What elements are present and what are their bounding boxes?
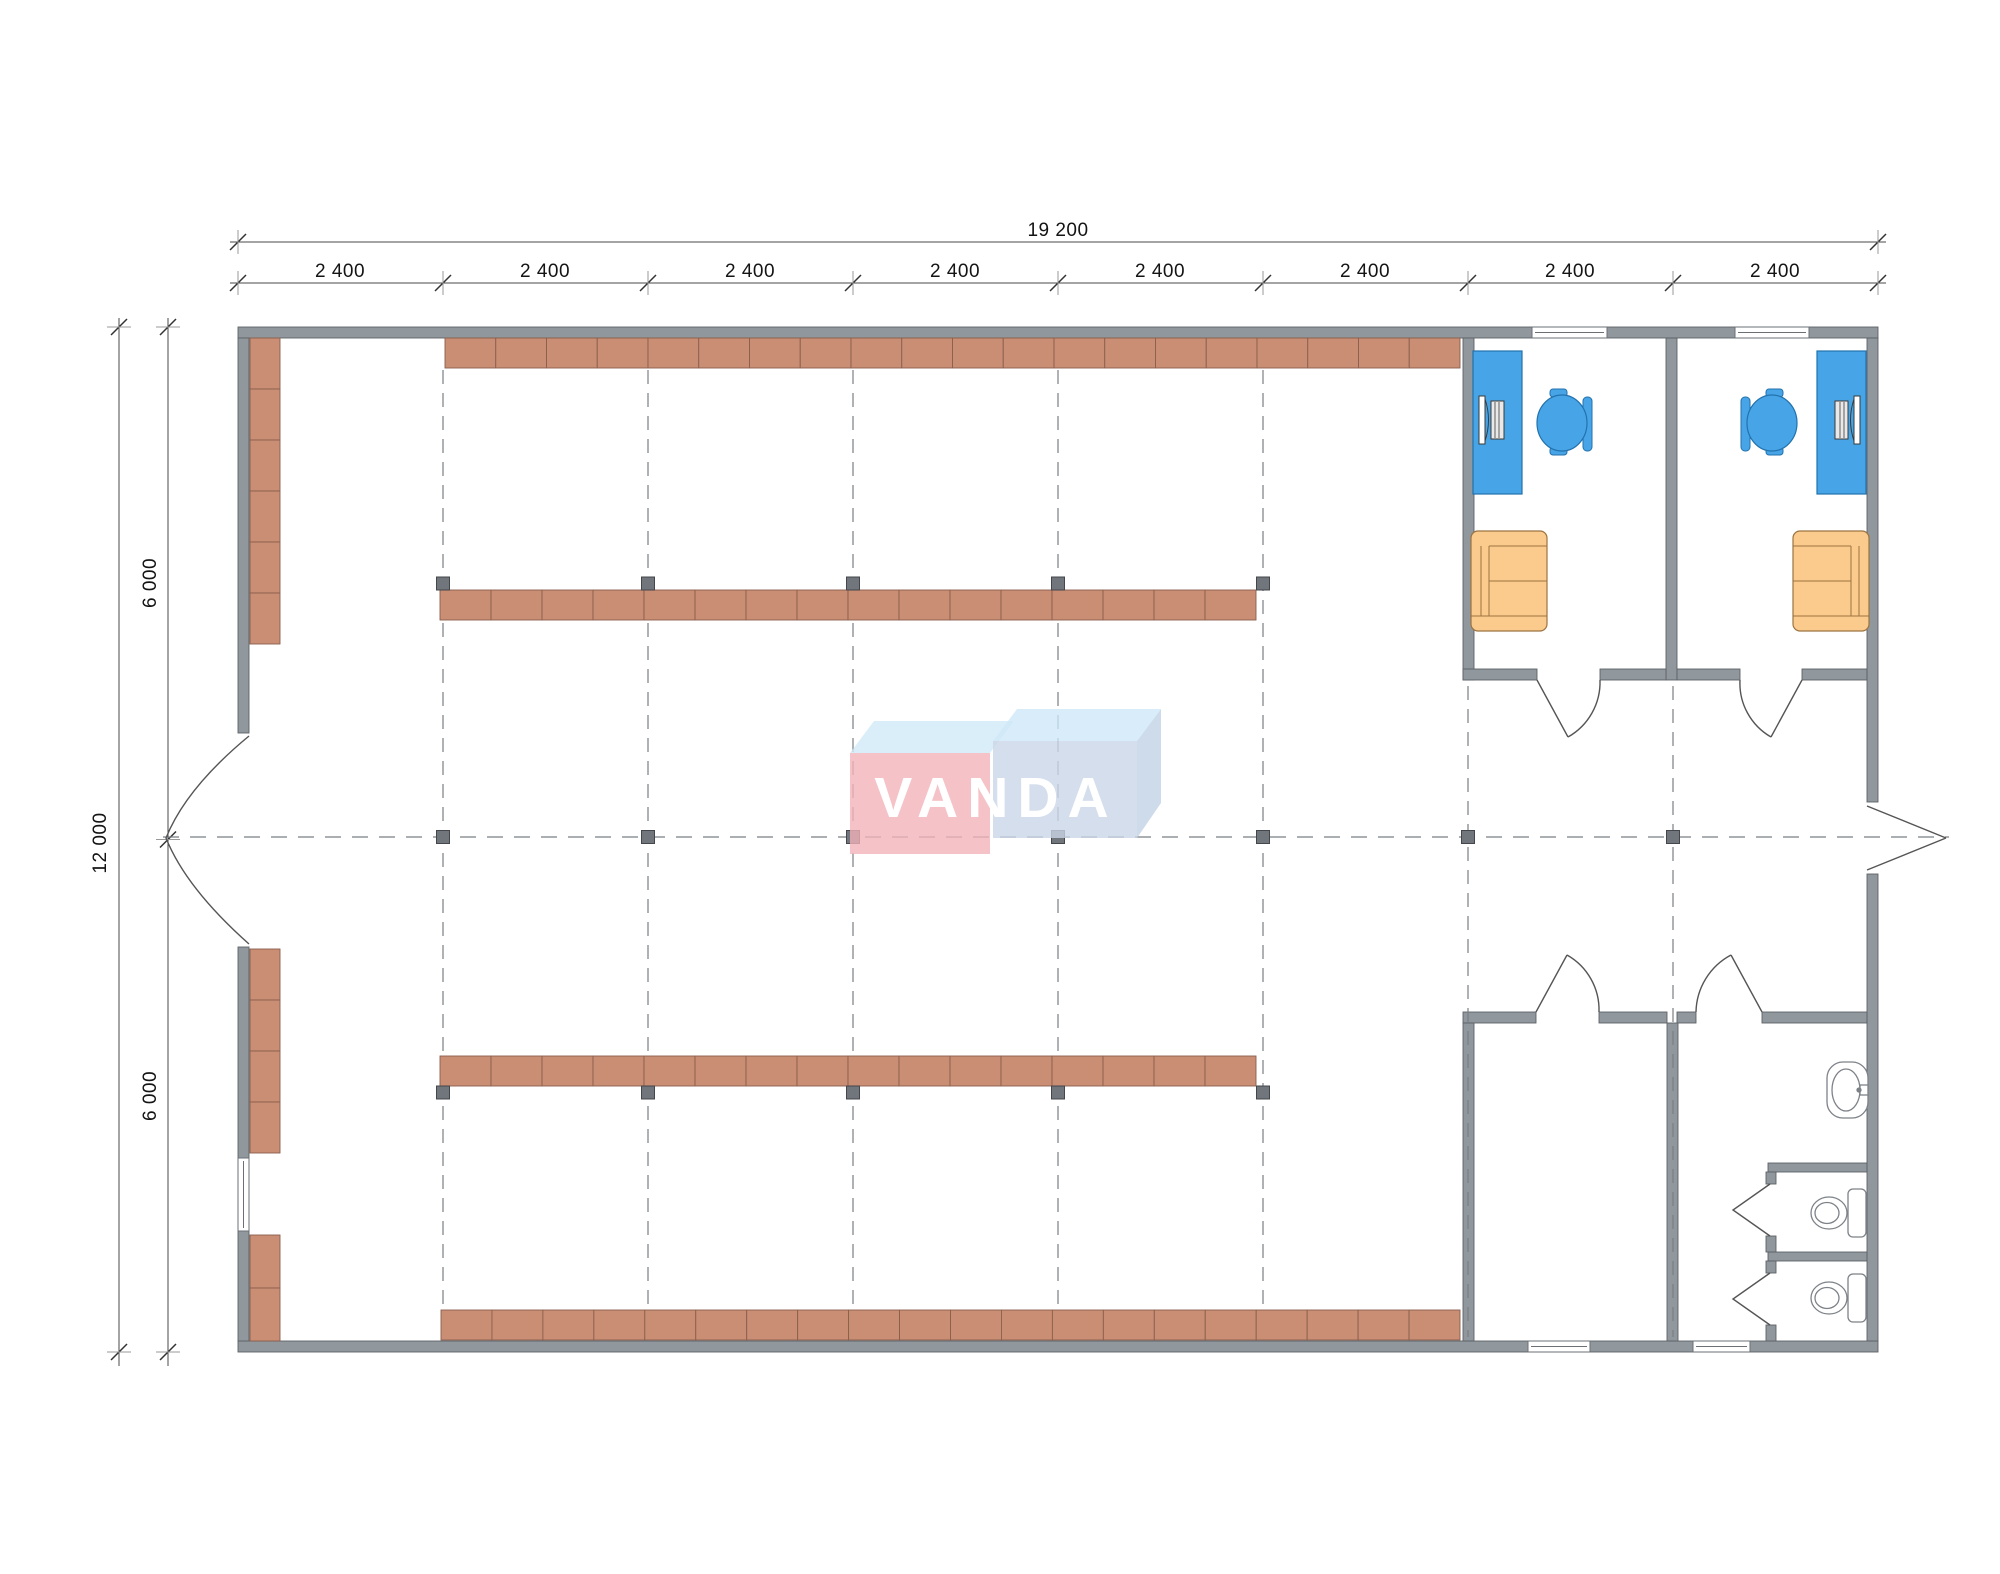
shelf-unit — [750, 338, 801, 368]
shelf-unit — [1001, 590, 1052, 620]
wall — [1766, 1172, 1776, 1184]
shelf-unit — [250, 1000, 280, 1051]
shelf-unit — [695, 1056, 746, 1086]
monitor-icon — [1479, 396, 1485, 444]
wall — [1463, 1012, 1536, 1023]
office-chair-icon — [1537, 395, 1587, 451]
shelf-unit — [1256, 1310, 1307, 1340]
logo-box-top — [993, 709, 1161, 741]
shelf-unit — [1205, 590, 1256, 620]
shelf-unit — [1105, 338, 1156, 368]
shelf-unit — [950, 590, 1001, 620]
wall — [1600, 669, 1666, 680]
column-marker — [1257, 1086, 1270, 1099]
shelf-unit — [746, 1056, 797, 1086]
shelf-unit — [899, 590, 950, 620]
shelf-unit — [1205, 1310, 1256, 1340]
shelf-unit — [1003, 338, 1054, 368]
office-1-furniture — [1471, 351, 1592, 631]
shelf-unit — [496, 338, 547, 368]
shelf-unit — [594, 1310, 645, 1340]
floor-plan-canvas: 19 200 2 400 2 400 2 400 2 400 2 400 2 4… — [0, 0, 2000, 1574]
shelf-unit — [797, 590, 848, 620]
shelf-unit — [1154, 1056, 1205, 1086]
dim-bay-8: 2 400 — [1750, 261, 1800, 282]
wall — [238, 1231, 249, 1341]
shelf-unit — [1103, 590, 1154, 620]
column-marker — [847, 1086, 860, 1099]
dim-total-height: 12 000 — [90, 812, 111, 873]
shelf-unit — [1103, 1056, 1154, 1086]
shelf-unit — [250, 440, 280, 491]
shelf-unit — [902, 338, 953, 368]
shelf-unit — [543, 1310, 594, 1340]
shelf-unit — [547, 338, 598, 368]
shelf-unit — [542, 590, 593, 620]
shelf-unit — [747, 1310, 798, 1340]
door-swing — [1537, 680, 1600, 737]
shelf-unit — [1001, 1310, 1052, 1340]
wall — [238, 327, 1878, 338]
shelf-unit — [445, 338, 496, 368]
column-marker — [642, 831, 655, 844]
shelf-unit — [250, 1235, 280, 1288]
shelf-unit — [848, 590, 899, 620]
wall — [1802, 669, 1867, 680]
wall — [1768, 1163, 1867, 1172]
shelf-unit — [250, 1051, 280, 1102]
sofa — [1471, 531, 1547, 631]
sofa — [1793, 531, 1869, 631]
wall — [1762, 1012, 1867, 1023]
shelf-unit — [250, 1102, 280, 1153]
dim-bay-3: 2 400 — [725, 261, 775, 282]
wall — [1867, 874, 1878, 1341]
shelf-unit — [644, 1056, 695, 1086]
office-chair-icon — [1747, 395, 1797, 451]
column-marker — [1257, 831, 1270, 844]
dim-bay-4: 2 400 — [930, 261, 980, 282]
door-swing — [1733, 1273, 1770, 1325]
shelf-unit — [492, 1310, 543, 1340]
wall — [1677, 1012, 1696, 1023]
shelf-unit — [951, 1310, 1002, 1340]
shelf-unit — [250, 491, 280, 542]
shelf-unit — [1052, 590, 1103, 620]
shelf-unit — [848, 1056, 899, 1086]
shelf-unit — [899, 1056, 950, 1086]
column-marker — [437, 577, 450, 590]
shelf-unit — [644, 590, 695, 620]
shelf-unit — [441, 1310, 492, 1340]
shelf-unit — [1359, 338, 1410, 368]
keyboard-icon — [1491, 401, 1504, 439]
logo-text: VANDA — [874, 766, 1117, 830]
wall — [1768, 1252, 1867, 1261]
shelf-unit — [699, 338, 750, 368]
shelf-unit — [849, 1310, 900, 1340]
shelf-unit — [1257, 338, 1308, 368]
shelf-unit — [250, 949, 280, 1000]
column-marker — [1052, 1086, 1065, 1099]
dim-bay-7: 2 400 — [1545, 261, 1595, 282]
shelf-unit — [250, 389, 280, 440]
shelf-unit — [1308, 338, 1359, 368]
door-swing — [1733, 1184, 1770, 1236]
shelf-unit — [695, 590, 746, 620]
wall — [1766, 1261, 1776, 1273]
dim-bay-6: 2 400 — [1340, 261, 1390, 282]
shelf-unit — [597, 338, 648, 368]
wall — [1599, 1012, 1667, 1023]
column-marker — [1462, 831, 1475, 844]
shelf-unit — [440, 590, 491, 620]
sink-icon — [1827, 1062, 1868, 1118]
wall — [238, 947, 249, 1158]
shelf-unit — [250, 338, 280, 389]
shelf-unit — [250, 542, 280, 593]
shelf-unit — [645, 1310, 696, 1340]
dim-half-top: 6 000 — [140, 558, 161, 608]
shelf-unit — [593, 1056, 644, 1086]
shelf-unit — [1205, 1056, 1256, 1086]
dim-half-bottom: 6 000 — [140, 1071, 161, 1121]
wall — [1666, 338, 1677, 680]
floor-plan-drawing: 19 200 2 400 2 400 2 400 2 400 2 400 2 4… — [0, 0, 2000, 1574]
shelf-unit — [491, 1056, 542, 1086]
shelf-unit — [1052, 1310, 1103, 1340]
shelf-unit — [440, 1056, 491, 1086]
shelf-unit — [542, 1056, 593, 1086]
bathroom-fixtures — [1811, 1062, 1868, 1322]
toilet-icon — [1811, 1274, 1866, 1322]
shelf-unit — [1103, 1310, 1154, 1340]
column-marker — [437, 1086, 450, 1099]
column-marker — [642, 1086, 655, 1099]
shelf-unit — [1206, 338, 1257, 368]
shelf-unit — [851, 338, 902, 368]
shelf-unit — [746, 590, 797, 620]
column-marker — [1257, 577, 1270, 590]
shelf-unit — [950, 1056, 1001, 1086]
shelf-unit — [593, 590, 644, 620]
shelf-unit — [648, 338, 699, 368]
shelf-unit — [1409, 338, 1460, 368]
column-marker — [1667, 831, 1680, 844]
keyboard-icon — [1835, 401, 1848, 439]
windows — [238, 327, 1809, 1352]
monitor-icon — [1854, 396, 1860, 444]
column-marker — [1052, 577, 1065, 590]
shelf-unit — [1154, 590, 1205, 620]
shelf-unit — [953, 338, 1004, 368]
column-marker — [847, 577, 860, 590]
door-swing — [1536, 955, 1599, 1012]
wall — [1677, 669, 1740, 680]
dim-bay-2: 2 400 — [520, 261, 570, 282]
shelf-unit — [798, 1310, 849, 1340]
toilet-icon — [1811, 1189, 1866, 1237]
wall — [238, 1341, 1878, 1352]
door-swing — [1740, 680, 1802, 737]
shelf-unit — [800, 338, 851, 368]
shelf-unit — [1001, 1056, 1052, 1086]
shelf-unit — [491, 590, 542, 620]
wall — [1766, 1325, 1776, 1341]
door-swing — [1867, 806, 1946, 870]
door-swing — [1696, 955, 1762, 1012]
dim-bay-1: 2 400 — [315, 261, 365, 282]
column-marker — [642, 577, 655, 590]
dim-bay-5: 2 400 — [1135, 261, 1185, 282]
column-marker — [437, 831, 450, 844]
shelf-unit — [797, 1056, 848, 1086]
shelf-unit — [1052, 1056, 1103, 1086]
wall — [1766, 1236, 1776, 1252]
shelf-unit — [696, 1310, 747, 1340]
shelf-unit — [1156, 338, 1207, 368]
logo-box-top — [850, 721, 1014, 753]
shelf-unit — [250, 593, 280, 644]
shelf-unit — [250, 1288, 280, 1341]
shelf-unit — [1307, 1310, 1358, 1340]
office-2-furniture — [1741, 351, 1869, 631]
shelf-unit — [1358, 1310, 1409, 1340]
vanda-logo: VANDA — [850, 709, 1161, 854]
dim-total-width: 19 200 — [1027, 220, 1088, 241]
wall — [238, 338, 249, 733]
shelf-unit — [1409, 1310, 1460, 1340]
wall — [1463, 669, 1537, 680]
shelf-unit — [1154, 1310, 1205, 1340]
shelf-unit — [900, 1310, 951, 1340]
column-grid — [163, 370, 1949, 1337]
shelf-unit — [1054, 338, 1105, 368]
